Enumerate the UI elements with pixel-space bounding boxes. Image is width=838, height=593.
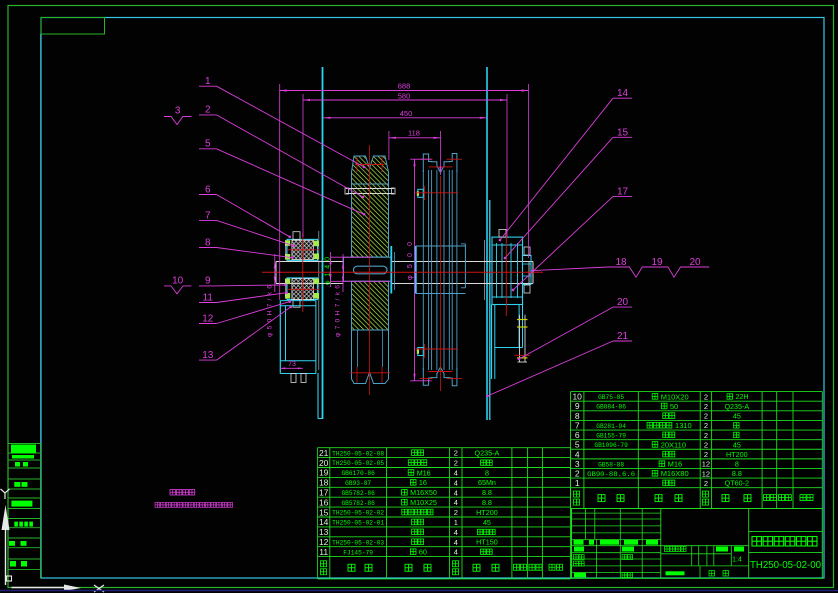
svg-text:2: 2	[704, 440, 708, 449]
svg-text:11: 11	[203, 293, 214, 304]
svg-text:1: 1	[454, 518, 458, 527]
svg-text:1: 1	[575, 478, 580, 488]
svg-text:8.8: 8.8	[732, 469, 742, 478]
svg-text:2: 2	[704, 392, 708, 401]
svg-text:M16X80: M16X80	[661, 469, 689, 478]
svg-text:TH250-05-02-01: TH250-05-02-01	[332, 520, 384, 527]
svg-text:4: 4	[454, 548, 458, 557]
svg-text:17: 17	[319, 487, 329, 497]
svg-text:11: 11	[319, 547, 328, 557]
svg-text:4: 4	[454, 468, 458, 477]
svg-text:4: 4	[454, 488, 458, 497]
svg-text:TH250-05-02-05: TH250-05-02-05	[332, 460, 384, 467]
svg-text:65Mn: 65Mn	[478, 478, 496, 487]
svg-text:45: 45	[733, 440, 741, 449]
svg-text:HT200: HT200	[476, 508, 498, 517]
svg-text:2: 2	[704, 412, 708, 421]
svg-text:14: 14	[617, 88, 629, 99]
svg-text:450: 450	[400, 109, 413, 118]
svg-text:14: 14	[319, 517, 329, 527]
svg-text:GB75-85: GB75-85	[598, 394, 624, 401]
svg-text:HT200: HT200	[726, 450, 748, 459]
svg-text:12: 12	[702, 460, 710, 469]
svg-text:M10X20: M10X20	[661, 392, 689, 401]
svg-text:8: 8	[735, 459, 739, 468]
svg-text:4: 4	[454, 538, 458, 547]
svg-text:10: 10	[172, 276, 184, 287]
svg-text:21: 21	[319, 448, 329, 458]
svg-text:15: 15	[617, 127, 629, 138]
svg-text:M16: M16	[417, 468, 431, 477]
svg-text:7: 7	[205, 210, 211, 221]
svg-text:20: 20	[319, 458, 329, 468]
svg-text:2: 2	[704, 450, 708, 459]
svg-text:HT150: HT150	[476, 538, 498, 547]
svg-text:688: 688	[398, 82, 411, 91]
svg-text:M16X50: M16X50	[410, 488, 437, 497]
svg-text:GB884-86: GB884-86	[596, 404, 626, 411]
svg-text:1: 1	[205, 76, 211, 87]
svg-text:9: 9	[575, 401, 580, 411]
svg-text:10: 10	[572, 392, 582, 402]
svg-text:8: 8	[575, 411, 580, 421]
svg-text:5: 5	[575, 440, 580, 450]
svg-text:TH250-05-02-03: TH250-05-02-03	[332, 539, 384, 546]
svg-text:5: 5	[205, 139, 211, 150]
svg-text:2: 2	[205, 105, 211, 116]
svg-text:19: 19	[651, 257, 663, 268]
svg-text:GB5782-86: GB5782-86	[341, 490, 375, 497]
svg-text:9: 9	[205, 276, 211, 287]
svg-text:4: 4	[454, 478, 458, 487]
svg-text:118: 118	[408, 128, 420, 137]
svg-text:13: 13	[202, 350, 214, 361]
svg-text:M10X25: M10X25	[410, 498, 437, 507]
svg-text:16: 16	[419, 478, 427, 487]
svg-text:12: 12	[702, 469, 710, 478]
svg-text:GB155-79: GB155-79	[596, 432, 626, 439]
svg-text:GB5782-86: GB5782-86	[341, 500, 375, 507]
svg-text:3: 3	[175, 106, 181, 117]
svg-text:8.8: 8.8	[482, 488, 492, 497]
svg-text:φ70H7/k6: φ70H7/k6	[335, 285, 342, 337]
svg-text:20: 20	[689, 257, 701, 268]
svg-text:22H: 22H	[735, 392, 748, 401]
svg-text:6: 6	[575, 430, 580, 440]
svg-text:20X110: 20X110	[661, 440, 686, 449]
svg-text:13: 13	[319, 527, 329, 537]
svg-text:GB6170-86: GB6170-86	[341, 470, 375, 477]
svg-text:φ50H7/k6: φ50H7/k6	[267, 285, 274, 337]
svg-text:GB281-94: GB281-94	[596, 423, 626, 430]
svg-text:GB1096-79: GB1096-79	[594, 442, 628, 449]
svg-text:2: 2	[704, 421, 708, 430]
svg-text:16: 16	[319, 497, 329, 507]
svg-text:QT60-2: QT60-2	[725, 479, 749, 488]
svg-text:2: 2	[454, 459, 458, 468]
svg-text:6: 6	[205, 185, 211, 196]
svg-text:21: 21	[617, 331, 629, 342]
svg-text:2: 2	[575, 468, 580, 478]
svg-text:Q235-A: Q235-A	[724, 402, 749, 411]
svg-text:2: 2	[454, 508, 458, 517]
svg-text:45: 45	[483, 518, 491, 527]
svg-text:12: 12	[319, 537, 329, 547]
svg-text:3: 3	[575, 459, 580, 469]
svg-text:45: 45	[733, 411, 741, 420]
svg-text:18: 18	[319, 478, 329, 488]
svg-text:Q235-A: Q235-A	[475, 448, 500, 457]
svg-text:1:4: 1:4	[732, 557, 742, 564]
svg-text:2: 2	[704, 479, 708, 488]
svg-text:FJ145-79: FJ145-79	[343, 549, 373, 556]
svg-text:8: 8	[485, 468, 489, 477]
svg-text:8.8: 8.8	[482, 498, 492, 507]
svg-text:4: 4	[454, 528, 458, 537]
svg-text:8: 8	[205, 238, 211, 249]
svg-text:TH250-05-02-08: TH250-05-02-08	[332, 450, 384, 457]
svg-text:20: 20	[617, 297, 629, 308]
svg-text:M16: M16	[668, 460, 683, 469]
svg-text:GB93-87: GB93-87	[345, 480, 371, 487]
svg-text:50: 50	[670, 402, 678, 411]
svg-text:15: 15	[319, 507, 329, 517]
svg-text:580: 580	[398, 91, 411, 100]
svg-text:17: 17	[617, 186, 629, 197]
svg-text:73: 73	[288, 361, 296, 368]
svg-text:4: 4	[575, 449, 580, 459]
svg-text:2: 2	[704, 402, 708, 411]
svg-text:4: 4	[454, 498, 458, 507]
svg-text:GB90-88.6.6: GB90-88.6.6	[587, 471, 635, 478]
svg-text:12: 12	[202, 314, 214, 325]
svg-text:60: 60	[419, 547, 427, 556]
svg-text:TH250-05-02-02: TH250-05-02-02	[332, 510, 384, 517]
svg-text:7: 7	[575, 420, 580, 430]
svg-text:1310: 1310	[675, 421, 692, 430]
svg-text:19: 19	[319, 468, 329, 478]
svg-text:TH250-05-02-00: TH250-05-02-00	[750, 560, 822, 571]
svg-text:2: 2	[704, 431, 708, 440]
svg-text:18: 18	[615, 257, 627, 268]
svg-text:GB58-88: GB58-88	[598, 461, 624, 468]
svg-text:2: 2	[454, 449, 458, 458]
